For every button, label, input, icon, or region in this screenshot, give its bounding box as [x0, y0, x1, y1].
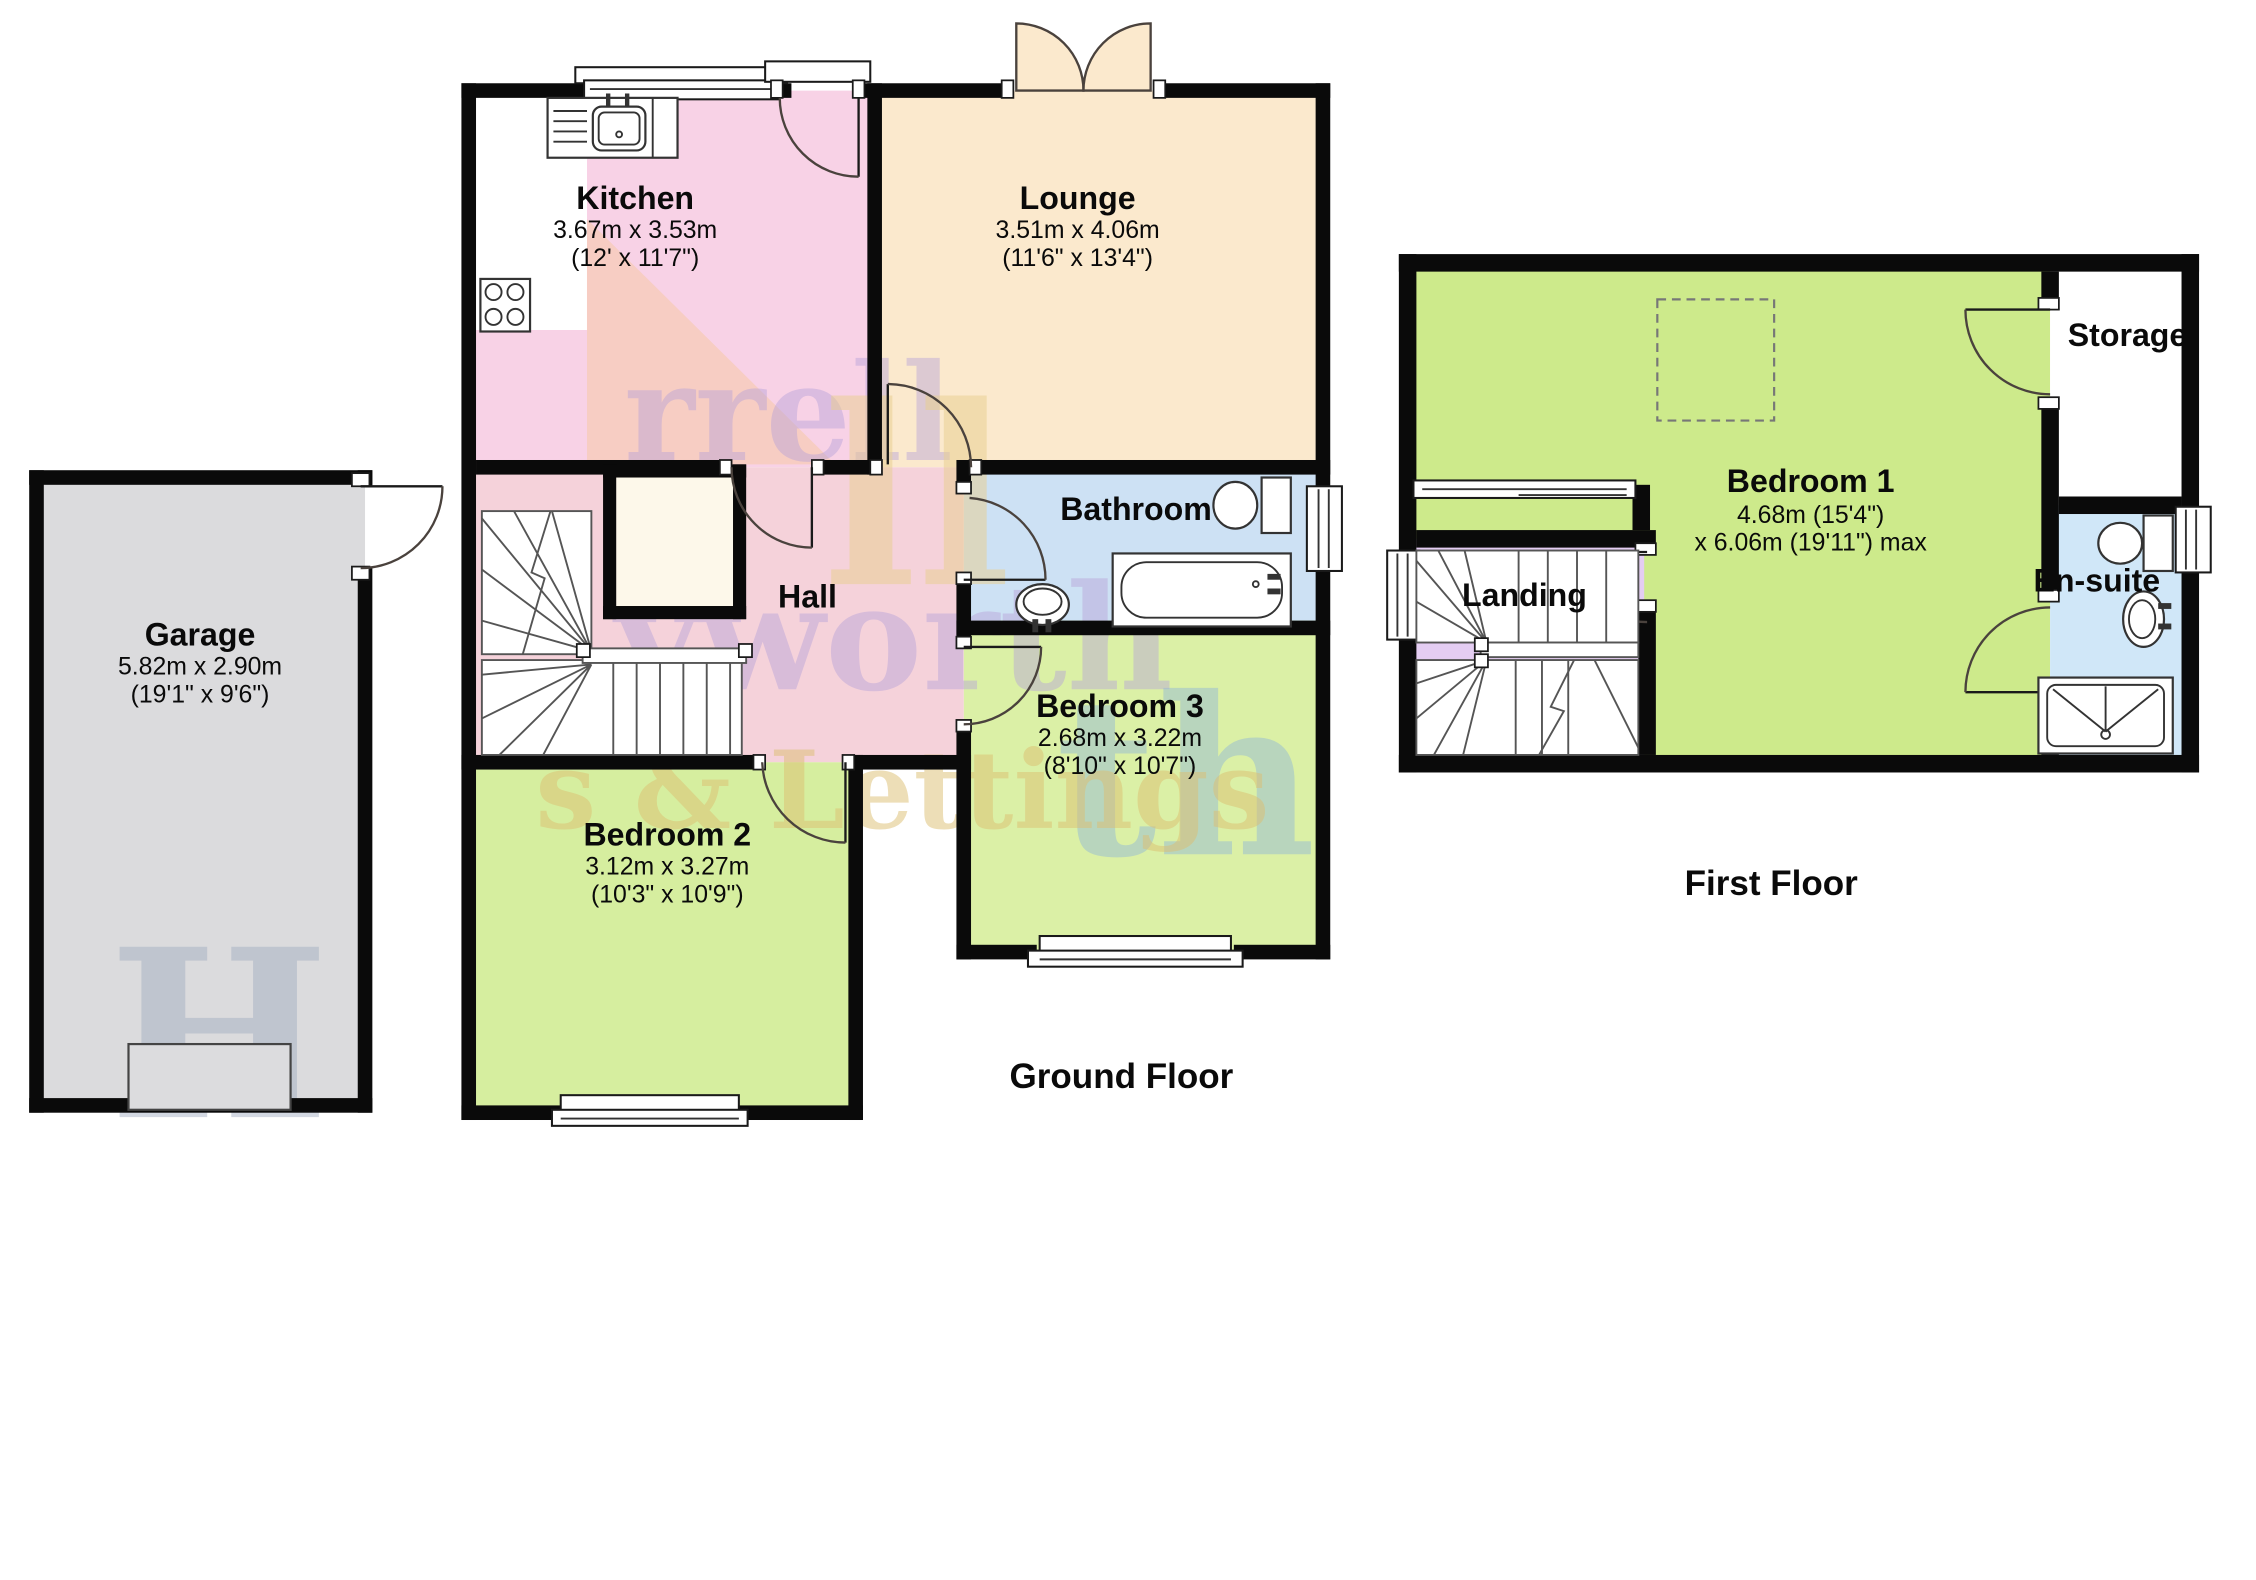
bedroom2-window [552, 1095, 748, 1126]
landing-window [1387, 551, 1419, 640]
tap [2158, 603, 2171, 609]
storage-floor [2050, 261, 2192, 505]
ground-floor-title: Ground Floor [1010, 1057, 1234, 1096]
cupboard-interior [616, 478, 733, 606]
bedroom3-dims-metric: 2.68m x 3.22m [1038, 725, 1202, 752]
tap [1045, 619, 1051, 632]
bedroom3-window [1028, 936, 1243, 967]
kitchen-dims-metric: 3.67m x 3.53m [553, 217, 717, 244]
kitchen-label: Kitchen [576, 180, 694, 216]
watermark-text: H [109, 899, 330, 1173]
garage-side-door [352, 473, 443, 580]
bedroom1-dims-metric: 4.68m (15'4") [1737, 502, 1884, 529]
bedroom3-dims-imperial: (8'10" x 10'7") [1044, 753, 1197, 780]
tap [1032, 619, 1038, 632]
bedroom1-eaves-window [1413, 480, 1635, 498]
landing-label: Landing [1462, 577, 1587, 613]
kitchen-counter-sink [548, 93, 678, 157]
bedroom2-dims-metric: 3.12m x 3.27m [585, 854, 749, 881]
tap [606, 93, 610, 106]
storage-label: Storage [2068, 317, 2188, 353]
ensuite-label: En-suite [2034, 562, 2161, 598]
tap [2158, 624, 2171, 630]
bedroom3-label: Bedroom 3 [1036, 688, 1204, 724]
hall-label: Hall [778, 578, 837, 614]
bedroom1-label: Bedroom 1 [1727, 463, 1895, 499]
bathroom-label: Bathroom [1060, 491, 1212, 527]
bedroom1-dims-imperial: x 6.06m (19'11") max [1694, 530, 1927, 557]
tap [1267, 574, 1280, 580]
kitchen-hob [480, 279, 530, 332]
garage-dims-metric: 5.82m x 2.90m [118, 654, 282, 681]
bedroom2-label: Bedroom 2 [583, 816, 751, 852]
garage-vehicle-door [128, 1044, 290, 1110]
ensuite-shower [2038, 678, 2172, 754]
garage-label: Garage [145, 616, 256, 652]
hall-cupboard [603, 464, 746, 619]
lounge-label: Lounge [1020, 180, 1136, 216]
first-floor-title: First Floor [1685, 864, 1859, 903]
garage-dims-imperial: (19'1" x 9'6") [131, 681, 270, 708]
ensuite-window [2176, 507, 2211, 573]
bathroom-window [1307, 486, 1342, 571]
tap [1267, 588, 1280, 594]
floorplan-canvas: rrell ll yworth th s & Lettings H [0, 0, 2256, 1580]
kitchen-dims-imperial: (12' x 11'7") [571, 245, 699, 272]
bedroom2-dims-imperial: (10'3" x 10'9") [591, 881, 744, 908]
tap [625, 93, 629, 106]
lounge-dims-metric: 3.51m x 4.06m [996, 217, 1160, 244]
lounge-french-doors [1002, 23, 1166, 97]
bathroom-bathtub [1113, 553, 1291, 626]
lounge-dims-imperial: (11'6" x 13'4") [1002, 245, 1153, 272]
